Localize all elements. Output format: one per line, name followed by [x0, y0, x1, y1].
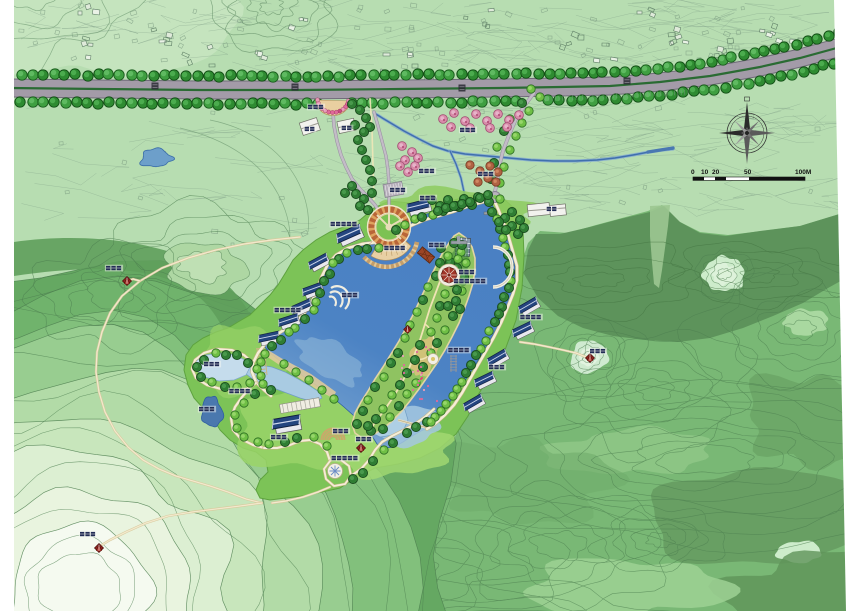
svg-text:50: 50 [744, 169, 752, 176]
svg-text:10: 10 [701, 169, 709, 176]
svg-text:0: 0 [691, 169, 695, 176]
svg-text:20: 20 [712, 169, 720, 176]
svg-text:100M: 100M [795, 169, 811, 176]
